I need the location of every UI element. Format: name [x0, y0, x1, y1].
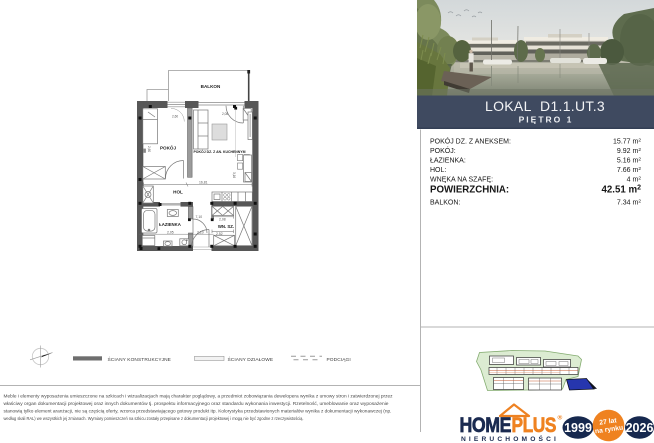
svg-text:HOL:: HOL: — [430, 167, 446, 174]
svg-text:NIERUCHOMOŚCI: NIERUCHOMOŚCI — [461, 434, 559, 443]
svg-text:PODCIĄGI: PODCIĄGI — [327, 357, 351, 363]
svg-text:2,52: 2,52 — [216, 232, 223, 236]
svg-text:HOL: HOL — [173, 189, 183, 194]
svg-text:2,08: 2,08 — [222, 112, 228, 116]
svg-text:HOME: HOME — [460, 414, 512, 437]
svg-text:WN. SZ.: WN. SZ. — [218, 224, 234, 229]
svg-text:LOKAL D1.1.UT.3: LOKAL D1.1.UT.3 — [485, 98, 605, 114]
svg-text:Meble i elementy wyposażenia u: Meble i elementy wyposażenia umieszczone… — [4, 394, 394, 400]
svg-text:1999: 1999 — [564, 421, 592, 435]
svg-text:stanowią tylko element aranżac: stanowią tylko element aranżacji, nie są… — [4, 409, 392, 415]
svg-text:PIĘTRO 1: PIĘTRO 1 — [519, 114, 574, 124]
svg-text:7,10: 7,10 — [196, 215, 203, 219]
svg-text:5.16 m2: 5.16 m2 — [617, 157, 641, 165]
svg-text:ŚCIANY DZIAŁOWE: ŚCIANY DZIAŁOWE — [228, 355, 274, 363]
svg-text:właściwy organ dokumentacji pr: właściwy organ dokumentacji projektowej … — [4, 401, 389, 407]
svg-text:2,05: 2,05 — [167, 230, 174, 234]
svg-text:2026: 2026 — [626, 421, 654, 435]
svg-text:POKÓJ:: POKÓJ: — [430, 146, 456, 155]
svg-text:2,60: 2,60 — [172, 115, 178, 119]
svg-text:BALKON: BALKON — [201, 84, 221, 89]
svg-text:POKÓJ DZ. Z ANEKSEM:: POKÓJ DZ. Z ANEKSEM: — [430, 137, 511, 146]
svg-text:7.34 m2: 7.34 m2 — [617, 198, 641, 206]
svg-text:16,81: 16,81 — [199, 180, 208, 184]
svg-text:2,60: 2,60 — [147, 146, 151, 152]
svg-text:BALKON:: BALKON: — [430, 199, 460, 206]
svg-text:15.77 m2: 15.77 m2 — [613, 138, 641, 146]
svg-text:według skali RAL) we wszystkic: według skali RAL) we wszystkich jej zmia… — [4, 416, 304, 422]
svg-text:ŚCIANY KONSTRUKCYJNE: ŚCIANY KONSTRUKCYJNE — [108, 355, 171, 363]
svg-text:ŁAZIENKA:: ŁAZIENKA: — [430, 158, 466, 165]
svg-text:ŁAZIENKA: ŁAZIENKA — [159, 222, 181, 227]
svg-text:4 m2: 4 m2 — [627, 176, 642, 184]
svg-text:POKÓJ DZ. Z AN. KUCHENNYM: POKÓJ DZ. Z AN. KUCHENNYM — [194, 149, 246, 154]
svg-text:42.51 m2: 42.51 m2 — [602, 185, 642, 196]
svg-text:PLUS: PLUS — [512, 414, 557, 437]
svg-text:2,10: 2,10 — [197, 231, 204, 235]
svg-text:WNĘKA NA SZAFĘ:: WNĘKA NA SZAFĘ: — [430, 177, 493, 184]
svg-text:®: ® — [558, 414, 563, 422]
svg-text:POKÓJ: POKÓJ — [160, 144, 177, 151]
svg-text:POWIERZCHNIA:: POWIERZCHNIA: — [430, 185, 509, 196]
svg-text:7.66 m2: 7.66 m2 — [617, 166, 641, 174]
svg-text:2,08: 2,08 — [219, 218, 226, 222]
svg-text:3,16: 3,16 — [232, 172, 236, 178]
svg-text:9.92 m2: 9.92 m2 — [617, 147, 641, 155]
